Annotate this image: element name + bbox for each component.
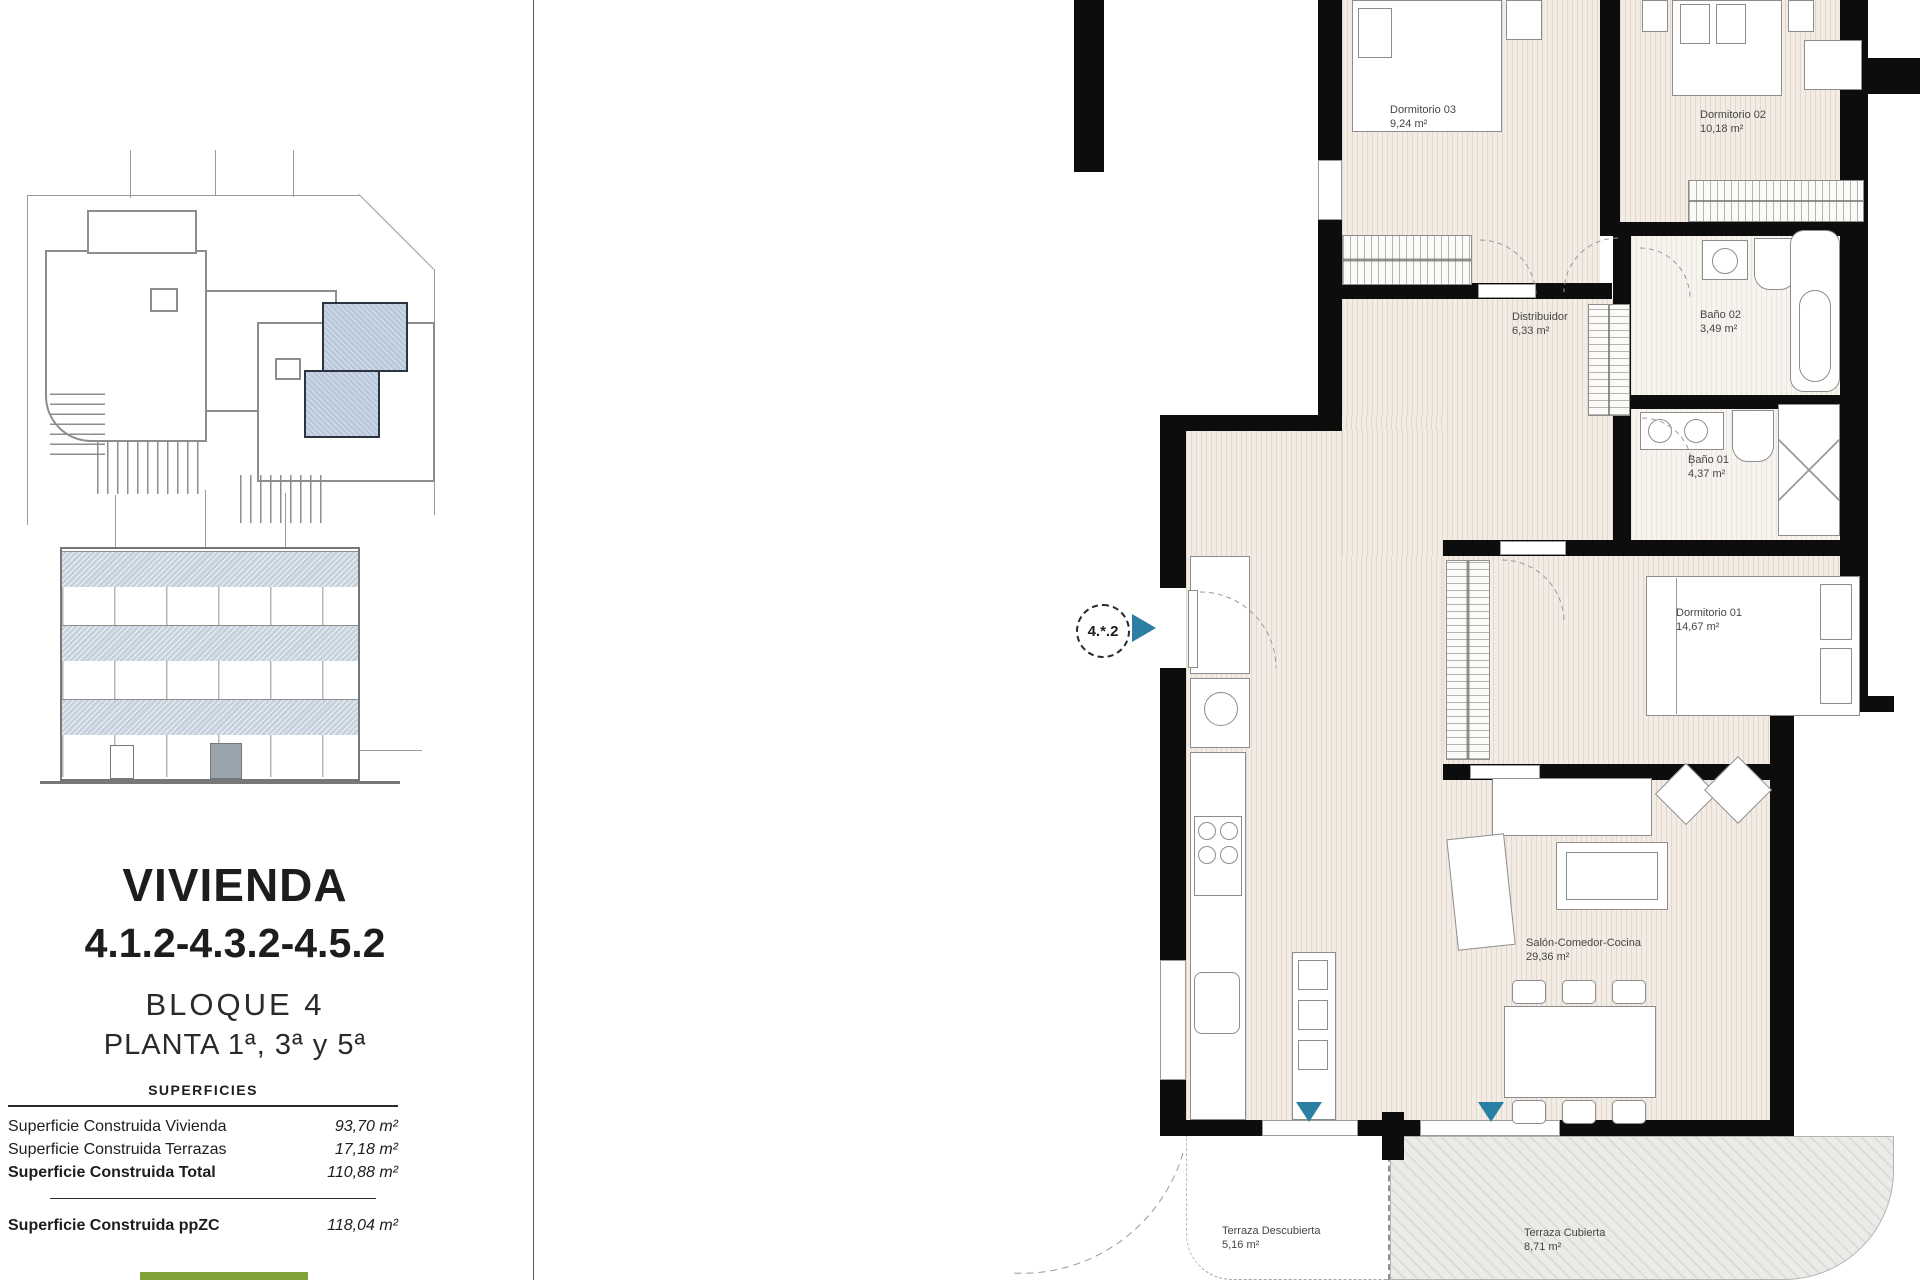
door-swing-arc (1638, 246, 1692, 300)
wardrobe (1588, 304, 1630, 416)
washer-door (1204, 692, 1238, 726)
room-area: 6,33 m² (1512, 324, 1568, 338)
wall (1318, 220, 1342, 415)
wall (1382, 1112, 1404, 1160)
room-name: Distribuidor (1512, 310, 1568, 324)
room-area: 5,16 m² (1222, 1238, 1320, 1252)
room-name: Terraza Descubierta (1222, 1224, 1320, 1238)
sink-basin (1712, 248, 1738, 274)
wall (1160, 415, 1342, 431)
room-label-dormitorio-03: Dormitorio 03 9,24 m² (1390, 103, 1456, 132)
toilet (1732, 410, 1774, 462)
door-swing-arc (1198, 590, 1278, 670)
chair (1512, 980, 1546, 1004)
kitchen-sink (1194, 972, 1240, 1034)
wardrobe (1446, 560, 1490, 760)
shower (1778, 404, 1840, 536)
door-swing-arc (1478, 238, 1538, 298)
wall (1613, 409, 1631, 540)
island-module (1298, 960, 1328, 990)
room-area: 14,67 m² (1676, 620, 1742, 634)
door-swing-arc (1500, 558, 1566, 624)
pillow (1820, 584, 1852, 640)
room-area: 10,18 m² (1700, 122, 1766, 136)
nightstand (1788, 0, 1814, 32)
terraza-descubierta (1186, 1136, 1390, 1280)
wall (1160, 415, 1186, 588)
sofa (1446, 833, 1515, 950)
room-name: Salón-Comedor-Cocina (1526, 936, 1641, 950)
desk (1804, 40, 1862, 90)
room-name: Baño 02 (1700, 308, 1741, 322)
door-swing-arc (1562, 236, 1620, 294)
room-area: 3,49 m² (1700, 322, 1741, 336)
burner (1220, 822, 1238, 840)
kitchen-counter (1190, 752, 1246, 1120)
window (1160, 960, 1186, 1080)
terraza-cubierta (1390, 1136, 1894, 1280)
room-name: Dormitorio 01 (1676, 606, 1742, 620)
bathtub-basin (1799, 290, 1831, 382)
chair (1562, 980, 1596, 1004)
door-opening (1500, 541, 1566, 555)
entry-door-leaf (1188, 590, 1198, 668)
pillow (1820, 648, 1852, 704)
coffee-table-top (1566, 852, 1658, 900)
room-name: Baño 01 (1688, 453, 1729, 467)
burner (1198, 846, 1216, 864)
wall (1318, 0, 1342, 160)
terrace-exit-arrow-icon (1478, 1102, 1504, 1122)
room-label-bano-01: Baño 01 4,37 m² (1688, 453, 1729, 482)
chair (1612, 980, 1646, 1004)
floor-plan: Dormitorio 03 9,24 m² Dormitorio 02 10,1… (0, 0, 1920, 1280)
island-module (1298, 1000, 1328, 1030)
dining-table (1504, 1006, 1656, 1098)
plan-sheet: VIVIENDA 4.1.2-4.3.2-4.5.2 BLOQUE 4 PLAN… (0, 0, 1920, 1280)
burner (1198, 822, 1216, 840)
island-module (1298, 1040, 1328, 1070)
room-name: Terraza Cubierta (1524, 1226, 1605, 1240)
nightstand (1506, 0, 1542, 40)
burner (1220, 846, 1238, 864)
chair (1562, 1100, 1596, 1124)
wardrobe (1688, 180, 1864, 222)
entry-arrow-icon (1132, 614, 1156, 642)
bed-fold-line (1676, 578, 1677, 714)
chair (1512, 1100, 1546, 1124)
sofa (1492, 778, 1652, 836)
nightstand (1642, 0, 1668, 32)
terrace-exit-arrow-icon (1296, 1102, 1322, 1122)
pillow (1358, 8, 1392, 58)
room-area: 4,37 m² (1688, 467, 1729, 481)
site-curve-dashed (1008, 1148, 1188, 1278)
room-label-salon: Salón-Comedor-Cocina 29,36 m² (1526, 936, 1641, 965)
wall (1868, 58, 1920, 94)
pillow (1680, 4, 1710, 44)
room-label-terraza-cubierta: Terraza Cubierta 8,71 m² (1524, 1226, 1605, 1255)
room-label-dormitorio-02: Dormitorio 02 10,18 m² (1700, 108, 1766, 137)
unit-marker-badge: 4.*.2 (1076, 604, 1130, 658)
terrace-door-opening (1262, 1120, 1358, 1136)
wardrobe (1342, 235, 1472, 285)
window (1318, 160, 1342, 220)
pillow (1716, 4, 1746, 44)
wall (1770, 696, 1794, 1136)
floor-distribuidor (1342, 299, 1613, 430)
room-label-dormitorio-01: Dormitorio 01 14,67 m² (1676, 606, 1742, 635)
room-label-distribuidor: Distribuidor 6,33 m² (1512, 310, 1568, 339)
room-name: Dormitorio 03 (1390, 103, 1456, 117)
room-label-terraza-descubierta: Terraza Descubierta 5,16 m² (1222, 1224, 1320, 1253)
room-area: 9,24 m² (1390, 117, 1456, 131)
unit-marker-text: 4.*.2 (1088, 623, 1119, 640)
wall (1600, 0, 1620, 236)
room-label-bano-02: Baño 02 3,49 m² (1700, 308, 1741, 337)
wall (1160, 668, 1186, 960)
room-area: 8,71 m² (1524, 1240, 1605, 1254)
door-swing-arc (1640, 416, 1694, 470)
chair (1612, 1100, 1646, 1124)
wall (1074, 0, 1104, 172)
floor-corridor (1342, 430, 1613, 556)
room-area: 29,36 m² (1526, 950, 1641, 964)
wall (1160, 1080, 1186, 1136)
room-name: Dormitorio 02 (1700, 108, 1766, 122)
door-opening (1470, 765, 1540, 779)
